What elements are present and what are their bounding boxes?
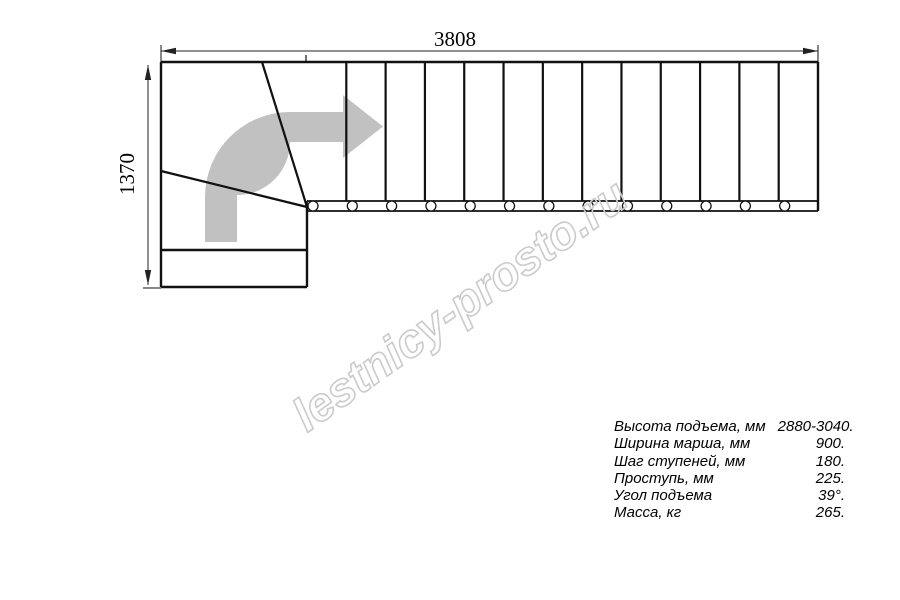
watermark-text: lestnicy-prosto.ru	[282, 168, 637, 441]
baluster-circle	[426, 201, 436, 211]
left-dimension-label: 1370	[115, 153, 139, 195]
dimension-arrowhead	[145, 270, 151, 285]
spec-value: 900.	[804, 435, 845, 452]
top-dimension-label: 3808	[434, 27, 476, 51]
baluster-circle	[505, 201, 515, 211]
spec-value: 265.	[804, 504, 845, 521]
stair-plan-canvas: 38081370lestnicy-prosto.ru Высота подъем…	[0, 0, 900, 600]
baluster-circle	[347, 201, 357, 211]
spec-row: Ширина марша, мм 900.	[614, 435, 845, 452]
spec-row: Масса, кг 265.	[614, 504, 845, 521]
baluster-circle	[662, 201, 672, 211]
baluster-circle	[701, 201, 711, 211]
spec-value: 225.	[804, 470, 845, 487]
baluster-circle	[780, 201, 790, 211]
dimension-arrowhead	[161, 48, 176, 54]
baluster-circle	[387, 201, 397, 211]
specifications-list: Высота подъема, мм 2880-3040. Ширина мар…	[614, 418, 845, 522]
baluster-circle	[308, 201, 318, 211]
spec-label: Ширина марша, мм	[614, 435, 750, 452]
baluster-circle	[465, 201, 475, 211]
spec-row: Угол подъема 39°.	[614, 487, 845, 504]
spec-value: 180.	[804, 453, 845, 470]
spec-value: 2880-3040.	[766, 418, 854, 435]
spec-row: Шаг ступеней, мм 180.	[614, 453, 845, 470]
dimension-arrowhead	[803, 48, 818, 54]
dimension-arrowhead	[145, 65, 151, 80]
spec-label: Масса, кг	[614, 504, 681, 521]
spec-label: Шаг ступеней, мм	[614, 453, 745, 470]
spec-label: Высота подъема, мм	[614, 418, 766, 435]
spec-label: Угол подъема	[614, 487, 712, 504]
spec-value: 39°.	[806, 487, 845, 504]
baluster-circle	[740, 201, 750, 211]
spec-label: Проступь, мм	[614, 470, 714, 487]
spec-row: Высота подъема, мм 2880-3040.	[614, 418, 845, 435]
spec-row: Проступь, мм 225.	[614, 470, 845, 487]
